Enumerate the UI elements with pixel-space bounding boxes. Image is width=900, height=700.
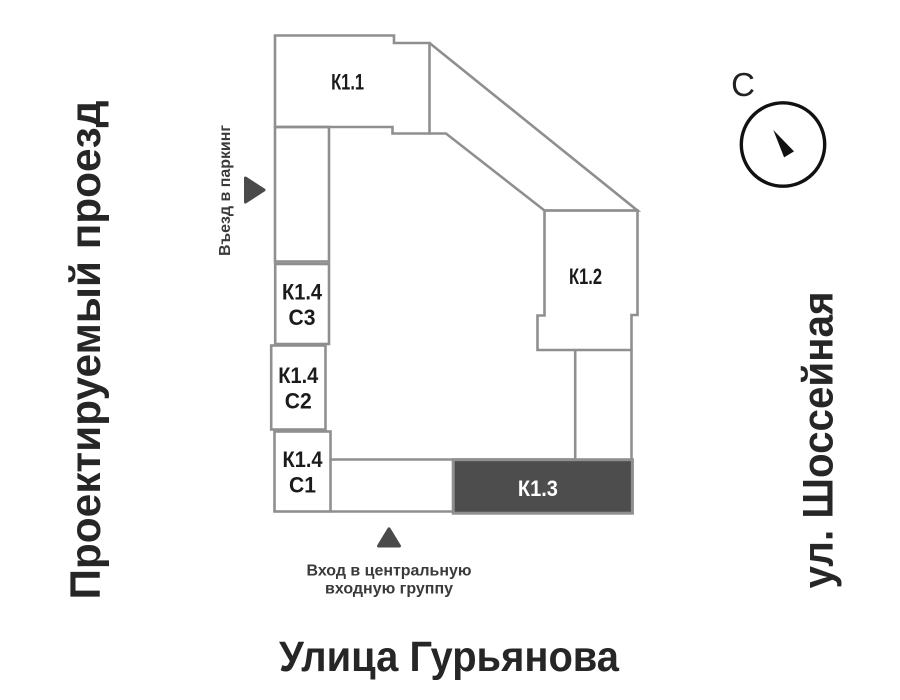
svg-text:ул. Шоссейная: ул. Шоссейная (795, 292, 843, 589)
svg-text:Улица Гурьянова: Улица Гурьянова (279, 633, 620, 681)
svg-text:С3: С3 (289, 305, 316, 330)
svg-text:Проектируемый проезд: Проектируемый проезд (62, 101, 110, 600)
svg-text:Въезд в паркинг: Въезд в паркинг (217, 125, 234, 256)
svg-text:Вход в центральную: Вход в центральную (307, 563, 472, 580)
svg-text:К1.4: К1.4 (282, 280, 323, 305)
svg-text:С1: С1 (289, 473, 316, 498)
svg-text:входную группу: входную группу (325, 580, 453, 597)
svg-text:К1.4: К1.4 (283, 447, 324, 472)
svg-text:К1.4: К1.4 (278, 363, 319, 388)
svg-text:С: С (731, 66, 755, 103)
svg-text:К1.3: К1.3 (518, 476, 558, 501)
svg-text:К1.2: К1.2 (569, 264, 602, 289)
svg-text:С2: С2 (285, 389, 312, 414)
svg-text:К1.1: К1.1 (331, 69, 364, 94)
